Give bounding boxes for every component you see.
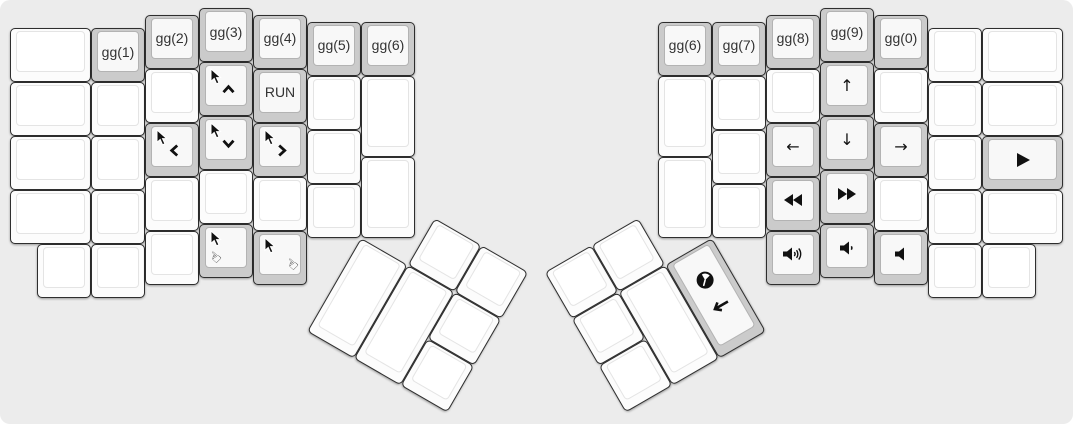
volume-mute-icon — [893, 246, 909, 262]
keycap-top — [151, 234, 193, 275]
keycap-top — [97, 139, 139, 180]
key-volume-down[interactable] — [820, 224, 874, 278]
mouse-cursor-icon — [263, 237, 276, 254]
key-label: gg(8) — [777, 30, 810, 46]
key-blank[interactable] — [982, 82, 1063, 136]
key-blank[interactable] — [928, 244, 982, 298]
keycap-top — [772, 72, 814, 113]
legend-mid — [221, 137, 236, 149]
key-blank[interactable] — [928, 28, 982, 82]
key-layer-gg2[interactable]: gg(2) — [145, 15, 199, 69]
key-blank[interactable] — [982, 190, 1063, 244]
keycap-top: gg(9) — [826, 11, 868, 52]
keycap-top — [988, 139, 1057, 180]
mouse-cursor-icon — [209, 122, 222, 139]
keycap-top: ☜ — [259, 234, 301, 275]
keycap-top: ↓ — [826, 119, 868, 160]
key-blank[interactable] — [874, 177, 928, 231]
key-blank[interactable] — [91, 190, 145, 244]
key-layer-gg7[interactable]: gg(7) — [712, 22, 766, 76]
key-blank[interactable] — [982, 244, 1036, 298]
legend-uc — [691, 266, 718, 293]
hand-pointer-icon: ☜ — [285, 257, 298, 272]
legend-br: ☜ — [285, 257, 298, 272]
fast-forward-icon — [836, 187, 858, 201]
legend-mid — [276, 143, 288, 158]
arrow-left-icon: ← — [786, 137, 799, 156]
keycap-top — [151, 180, 193, 221]
keycap-top — [718, 187, 760, 228]
keycap-top — [151, 126, 193, 167]
key-arrow-right[interactable]: → — [874, 123, 928, 177]
key-blank[interactable] — [253, 177, 307, 231]
keycap-top: ☜ — [205, 227, 247, 268]
key-blank[interactable] — [10, 136, 91, 190]
key-volume-mute[interactable] — [874, 231, 928, 285]
keyboard-canvas: gg(1)gg(2)gg(3)gg(4)gg(5)gg(6)RUN☜☜gg(6)… — [0, 0, 1073, 424]
key-blank[interactable] — [307, 130, 361, 184]
key-blank[interactable] — [712, 76, 766, 130]
key-label: gg(7) — [723, 37, 756, 53]
key-label: gg(3) — [210, 24, 243, 40]
legend-lc — [708, 295, 731, 315]
keycap-top: gg(6) — [664, 25, 706, 66]
keycap-top — [772, 234, 814, 275]
keycap-top — [205, 119, 247, 160]
keycap-top — [313, 133, 355, 174]
key-blank[interactable] — [145, 177, 199, 231]
mouse-cursor-icon — [155, 129, 168, 146]
hand-pointer-icon: ☜ — [208, 250, 221, 265]
keycap-top — [97, 247, 139, 288]
key-label: gg(2) — [156, 30, 189, 46]
key-label: gg(1) — [102, 44, 135, 60]
key-label: gg(4) — [264, 30, 297, 46]
key-arrow-down[interactable]: ↓ — [820, 116, 874, 170]
keycap-top — [988, 247, 1030, 288]
key-blank[interactable] — [766, 69, 820, 123]
key-blank[interactable] — [928, 190, 982, 244]
key-blank[interactable] — [199, 170, 253, 224]
key-mouse-left[interactable] — [145, 123, 199, 177]
arrow-right-icon: → — [894, 137, 907, 156]
keycap-top: ↑ — [826, 65, 868, 106]
key-blank[interactable] — [10, 28, 91, 82]
key-blank[interactable] — [658, 76, 712, 157]
key-blank[interactable] — [91, 82, 145, 136]
keycap-top — [16, 193, 85, 234]
key-blank[interactable] — [928, 82, 982, 136]
keycap-top — [367, 79, 409, 147]
keycap-top — [367, 160, 409, 228]
keycap-top — [880, 180, 922, 221]
key-mouse-right[interactable] — [253, 123, 307, 177]
keycap-top — [151, 72, 193, 113]
keycap-top: → — [880, 126, 922, 167]
key-layer-gg6-right[interactable]: gg(6) — [658, 22, 712, 76]
chevron-up-icon — [221, 83, 236, 95]
keycap-top — [313, 79, 355, 120]
key-label: gg(6) — [669, 37, 702, 53]
chevron-right-icon — [276, 143, 288, 158]
keycap-top: gg(3) — [205, 11, 247, 52]
key-label: RUN — [265, 84, 295, 100]
keycap-top — [934, 139, 976, 180]
key-mouse-button2[interactable]: ☜ — [253, 231, 307, 285]
rewind-icon — [782, 193, 804, 207]
keycap-top — [934, 85, 976, 126]
keycap-top — [664, 79, 706, 147]
key-layer-gg1[interactable]: gg(1) — [91, 28, 145, 82]
mouse-cursor-icon — [209, 68, 222, 85]
keycap-top — [97, 85, 139, 126]
keycap-top: gg(0) — [880, 18, 922, 59]
legend-mid — [221, 83, 236, 95]
key-label: gg(0) — [885, 30, 918, 46]
key-layer-gg8[interactable]: gg(8) — [766, 15, 820, 69]
key-run[interactable]: RUN — [253, 69, 307, 123]
keycap-top — [988, 31, 1057, 72]
legend-mid — [168, 143, 180, 158]
keycap-top — [598, 223, 655, 280]
key-blank[interactable] — [10, 190, 91, 244]
page: gg(1)gg(2)gg(3)gg(4)gg(5)gg(6)RUN☜☜gg(6)… — [0, 0, 1073, 424]
key-blank[interactable] — [307, 76, 361, 130]
legend-tl — [263, 237, 276, 254]
arrow-up-icon: ↑ — [840, 76, 853, 95]
legend-tl — [155, 129, 168, 146]
play-icon — [1014, 151, 1032, 169]
keycap-top — [465, 250, 522, 307]
keycap-top — [934, 193, 976, 234]
key-blank[interactable] — [874, 69, 928, 123]
keycap-top: ← — [772, 126, 814, 167]
key-layer-gg3[interactable]: gg(3) — [199, 8, 253, 62]
keycap-top — [988, 193, 1057, 234]
key-layer-gg5[interactable]: gg(5) — [307, 22, 361, 76]
keycap-top — [97, 193, 139, 234]
keycap-top: gg(1) — [97, 31, 139, 72]
legend-tl — [209, 122, 222, 139]
keycap-top — [880, 234, 922, 275]
volume-down-icon — [837, 240, 857, 256]
key-blank[interactable] — [982, 28, 1063, 82]
keycap-top — [16, 31, 85, 72]
key-blank[interactable] — [145, 231, 199, 285]
key-blank[interactable] — [10, 82, 91, 136]
key-label: gg(9) — [831, 24, 864, 40]
key-blank[interactable] — [91, 136, 145, 190]
legend-tl — [263, 129, 276, 146]
key-label: gg(5) — [318, 37, 351, 53]
key-media-rewind[interactable] — [766, 177, 820, 231]
keycap-top: gg(4) — [259, 18, 301, 59]
key-layer-gg4[interactable]: gg(4) — [253, 15, 307, 69]
keycap-top — [880, 72, 922, 113]
clock-icon — [691, 266, 718, 293]
key-label: gg(6) — [372, 37, 405, 53]
key-blank[interactable] — [91, 244, 145, 298]
key-media-play[interactable] — [982, 136, 1063, 190]
key-blank[interactable] — [361, 76, 415, 157]
keycap-top — [664, 160, 706, 228]
keycap-top — [259, 180, 301, 221]
key-layer-gg9[interactable]: gg(9) — [820, 8, 874, 62]
keycap-top — [826, 173, 868, 214]
key-layer-gg0[interactable]: gg(0) — [874, 15, 928, 69]
chevron-down-icon — [221, 137, 236, 149]
keycap-top — [934, 31, 976, 72]
keycap-top — [718, 79, 760, 120]
keycap-top: RUN — [259, 72, 301, 113]
key-mouse-button1[interactable]: ☜ — [199, 224, 253, 278]
key-blank[interactable] — [145, 69, 199, 123]
mouse-cursor-icon — [209, 230, 222, 247]
keycap-top — [259, 126, 301, 167]
keycap-top — [988, 85, 1057, 126]
key-mouse-down[interactable] — [199, 116, 253, 170]
key-blank[interactable] — [928, 136, 982, 190]
key-blank[interactable] — [307, 184, 361, 238]
volume-up-icon — [782, 246, 805, 262]
key-blank[interactable] — [712, 184, 766, 238]
key-layer-gg6-left[interactable]: gg(6) — [361, 22, 415, 76]
keycap-top — [16, 85, 85, 126]
key-arrow-up[interactable]: ↑ — [820, 62, 874, 116]
key-blank[interactable] — [658, 157, 712, 238]
keycap-top — [934, 247, 976, 288]
keycap-top — [16, 139, 85, 180]
key-blank[interactable] — [37, 244, 91, 298]
key-arrow-left[interactable]: ← — [766, 123, 820, 177]
keycap-top — [718, 133, 760, 174]
legend-tl — [209, 230, 222, 247]
keycap-top — [43, 247, 85, 288]
keycap-top: gg(7) — [718, 25, 760, 66]
key-blank[interactable] — [361, 157, 415, 238]
key-mouse-up[interactable] — [199, 62, 253, 116]
keycap-top — [772, 180, 814, 221]
chevron-left-icon — [168, 143, 180, 158]
key-blank[interactable] — [712, 130, 766, 184]
keycap-top — [313, 187, 355, 228]
key-volume-up[interactable] — [766, 231, 820, 285]
keycap-top: gg(6) — [367, 25, 409, 66]
keycap-top — [205, 65, 247, 106]
key-media-fast-forward[interactable] — [820, 170, 874, 224]
legend-tl — [209, 68, 222, 85]
return-arrow-icon — [708, 295, 731, 315]
mouse-cursor-icon — [263, 129, 276, 146]
legend-bl: ☜ — [208, 250, 221, 265]
keycap-top — [205, 173, 247, 214]
arrow-down-icon: ↓ — [840, 130, 853, 149]
keycap-top: gg(8) — [772, 18, 814, 59]
keycap-top: gg(2) — [151, 18, 193, 59]
keycap-top — [826, 227, 868, 268]
keycap-top: gg(5) — [313, 25, 355, 66]
